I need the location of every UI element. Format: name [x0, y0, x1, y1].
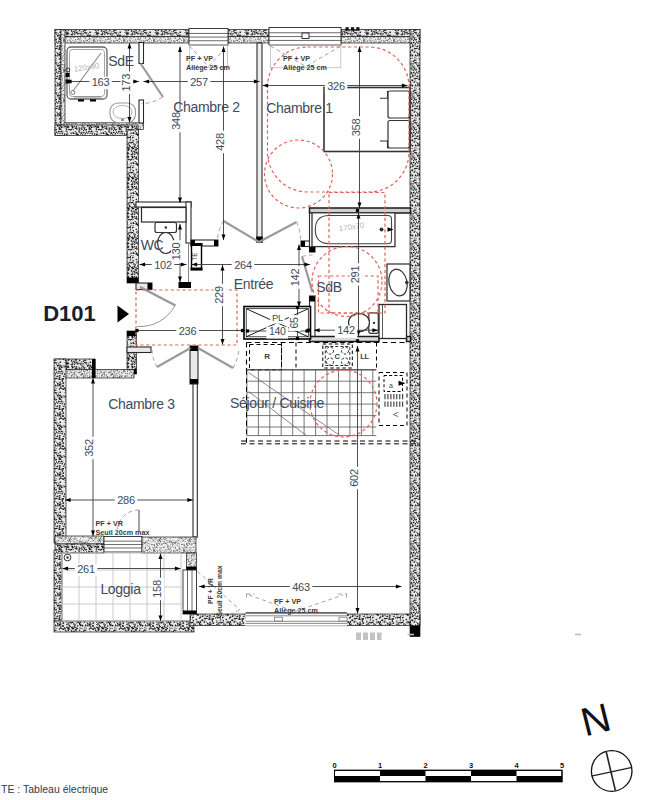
svg-text:261: 261	[77, 563, 95, 575]
svg-text:Séjour / Cuisine: Séjour / Cuisine	[230, 395, 325, 411]
svg-text:N: N	[576, 695, 615, 745]
svg-text:a: a	[389, 382, 393, 389]
svg-text:291: 291	[349, 266, 361, 284]
svg-text:257: 257	[190, 76, 208, 88]
svg-text:TE: TE	[191, 252, 198, 261]
svg-text:D101: D101	[43, 301, 96, 326]
svg-text:0: 0	[332, 761, 336, 770]
svg-text:Seuil 20cm max: Seuil 20cm max	[96, 528, 150, 537]
svg-text:PF + VR: PF + VR	[96, 519, 124, 528]
svg-text:2: 2	[423, 761, 427, 770]
svg-text:173: 173	[120, 74, 132, 92]
svg-text:3: 3	[469, 761, 473, 770]
svg-text:602: 602	[348, 469, 360, 487]
svg-text:326: 326	[327, 80, 345, 92]
svg-text:140: 140	[269, 325, 286, 337]
svg-text:163: 163	[92, 76, 110, 88]
svg-text:264: 264	[234, 259, 252, 271]
svg-text:Chambre 2: Chambre 2	[173, 99, 240, 115]
svg-text:352: 352	[83, 439, 95, 457]
svg-text:Allège 25 cm: Allège 25 cm	[274, 606, 318, 615]
svg-text:PF + VP: PF + VP	[186, 54, 213, 63]
svg-text:4: 4	[514, 761, 519, 770]
svg-text:SdE: SdE	[108, 53, 134, 69]
svg-text:142: 142	[289, 269, 301, 287]
svg-text:V: V	[391, 412, 400, 417]
svg-text:SdB: SdB	[316, 279, 342, 295]
svg-text:WC: WC	[141, 237, 164, 253]
svg-text:286: 286	[117, 494, 135, 506]
svg-text:65: 65	[288, 317, 300, 329]
svg-text:358: 358	[350, 119, 362, 137]
svg-text:229: 229	[213, 286, 225, 304]
svg-text:130: 130	[170, 243, 182, 261]
svg-text:5: 5	[560, 761, 564, 770]
svg-text:TE : Tableau électrique: TE : Tableau électrique	[1, 783, 108, 795]
svg-text:Entrée: Entrée	[234, 276, 274, 292]
svg-text:1: 1	[378, 761, 382, 770]
svg-text:PL: PL	[272, 312, 283, 323]
svg-text:PF + VR: PF + VR	[207, 578, 214, 604]
svg-text:Loggia: Loggia	[100, 581, 141, 597]
svg-text:Chambre 3: Chambre 3	[108, 396, 175, 412]
svg-text:C: C	[334, 352, 340, 361]
svg-text:142: 142	[337, 324, 355, 336]
svg-text:PF + VP: PF + VP	[274, 597, 301, 606]
svg-text:428: 428	[214, 133, 226, 151]
svg-text:Allège 25 cm: Allège 25 cm	[283, 63, 327, 72]
svg-text:Allège 25 cm: Allège 25 cm	[186, 63, 230, 72]
svg-text:Seuil 20cm max: Seuil 20cm max	[216, 565, 223, 616]
svg-text:236: 236	[179, 325, 197, 337]
svg-text:158: 158	[151, 580, 163, 598]
svg-text:463: 463	[292, 581, 310, 593]
svg-text:R: R	[264, 352, 270, 361]
svg-text:Chambre 1: Chambre 1	[266, 100, 333, 116]
svg-text:PF + VP: PF + VP	[283, 54, 310, 63]
svg-text:LL: LL	[360, 352, 369, 361]
